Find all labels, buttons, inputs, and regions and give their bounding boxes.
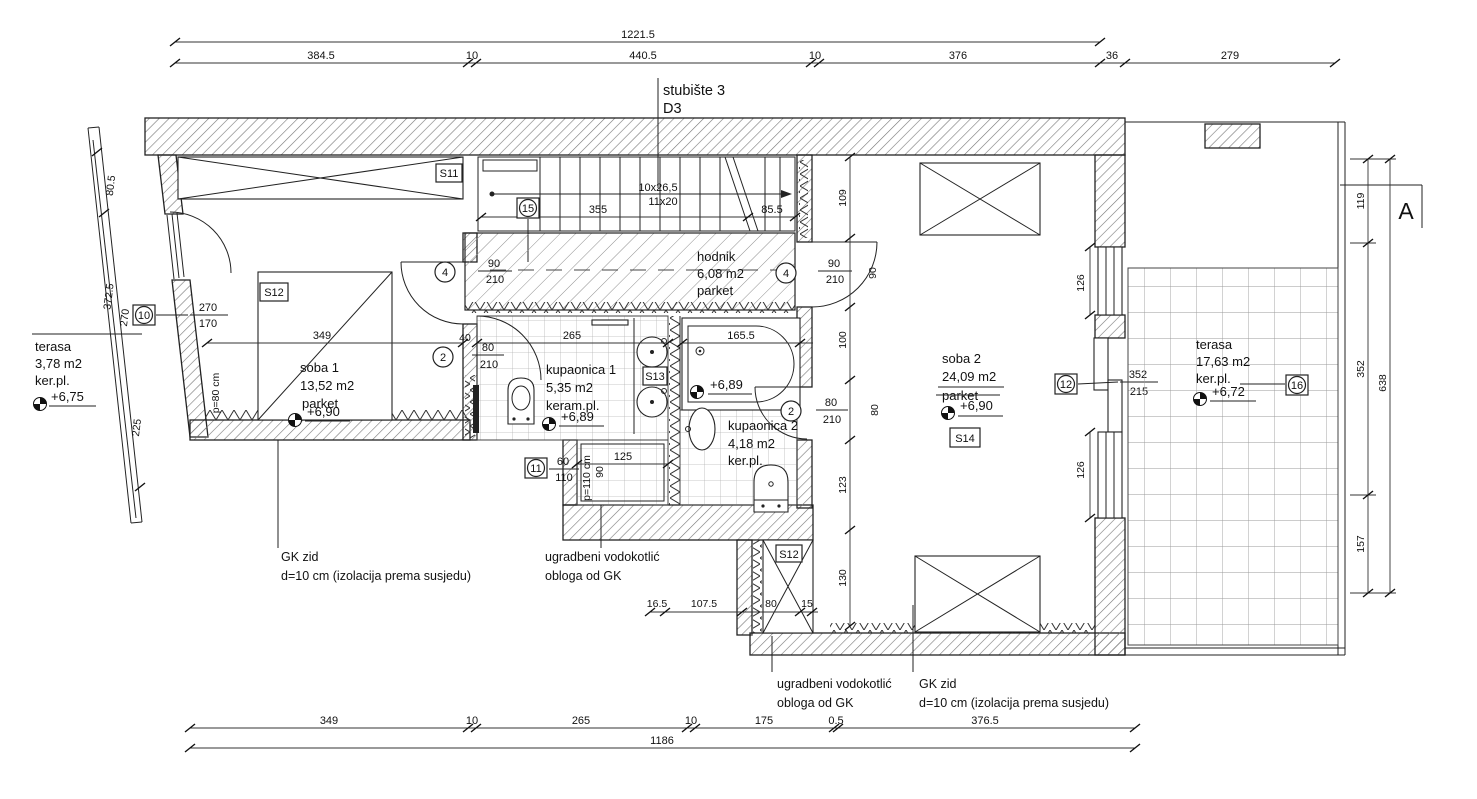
window-upper — [1098, 247, 1122, 315]
note-gk-right-2: d=10 cm (izolacija prema susjedu) — [919, 696, 1109, 710]
soba1-name: soba 1 — [300, 360, 339, 375]
dim-closet-16-5: 16.5 — [647, 598, 668, 610]
level-marker-icon — [34, 398, 47, 411]
stair-tread-count: 11x20 — [648, 196, 677, 208]
dim-right-352: 352 — [1355, 360, 1367, 378]
stair-door-label: D3 — [663, 101, 682, 117]
door2r-width: 80 — [825, 397, 837, 409]
win10-height: 170 — [199, 318, 217, 330]
top-dimension-lines: 1221.5 384.5 10 440.5 10 376 36 279 — [170, 29, 1340, 67]
dim-left-372-5: 372.5 — [101, 283, 116, 311]
terasa-left-level: +6,75 — [51, 389, 84, 404]
door-mark-2-right: 2 — [788, 406, 794, 418]
dim-126-lower: 126 — [1075, 461, 1087, 479]
dim-closet-107-5: 107.5 — [691, 598, 717, 610]
kup2-floor: ker.pl. — [728, 453, 763, 468]
window-swing-arc — [170, 212, 231, 273]
win11-parapet: p=110 cm — [581, 455, 593, 501]
soba2-east-wall-lower — [1095, 518, 1125, 655]
toilet-kup1 — [508, 378, 534, 424]
kup-divider-wall — [669, 316, 680, 505]
note-cistern-left-1: ugradbeni vodokotlić — [545, 550, 660, 564]
dim-top-4: 376 — [949, 50, 967, 62]
dim-mid-100: 100 — [837, 331, 849, 349]
note-gk-right-1: GK zid — [919, 677, 957, 691]
dim-mid-90: 90 — [867, 267, 879, 279]
soba2-east-wall-upper — [1095, 155, 1125, 247]
kup2-area: 4,18 m2 — [728, 436, 775, 451]
dim-40: 40 — [459, 332, 471, 344]
marker-12: 12 — [1060, 379, 1072, 391]
soba2-level: +6,90 — [960, 398, 993, 413]
dim-90-rotated: 90 — [594, 466, 606, 478]
door-mark-2-left: 2 — [440, 352, 446, 364]
dim-bottom-4: 175 — [755, 715, 773, 727]
dim-top-1: 10 — [466, 50, 478, 62]
soba2-east-wall-mid — [1095, 315, 1125, 338]
dim-shower-125: 125 — [614, 451, 632, 463]
radiator — [473, 385, 479, 433]
level-marker-icon — [691, 386, 704, 399]
terasa-right-name: terasa — [1196, 337, 1233, 352]
soba2-name: soba 2 — [942, 351, 981, 366]
dim-right-total-638: 638 — [1377, 374, 1389, 392]
dim-soba1-349: 349 — [313, 330, 331, 342]
note-cistern-right-2: obloga od GK — [777, 696, 854, 710]
terrace-tile-floor — [1128, 268, 1338, 645]
kup1-name: kupaonica 1 — [546, 362, 616, 377]
dim-top-3: 10 — [809, 50, 821, 62]
win10-width: 270 — [199, 302, 217, 314]
soba2-area: 24,09 m2 — [942, 369, 996, 384]
win11-width: 60 — [557, 456, 569, 468]
win11-height: 110 — [555, 472, 573, 484]
dim-stair-355: 355 — [589, 204, 607, 216]
dim-top-5: 36 — [1106, 50, 1118, 62]
terasa-left-floor: ker.pl. — [35, 373, 70, 388]
mark-s13: S13 — [645, 371, 665, 383]
mark-s14: S14 — [955, 433, 975, 445]
floor-plan-sheet: 80.5 372.5 270 225 1221.5 384.5 10 440.5… — [0, 0, 1477, 799]
level-marker-icon — [942, 407, 955, 420]
cistern-closet: S12 16.5 107.5 80 15 — [645, 540, 818, 633]
stair-title: stubište 3 — [663, 83, 725, 99]
soba1-level: +6,90 — [307, 404, 340, 419]
floor-plan-drawing: 80.5 372.5 270 225 1221.5 384.5 10 440.5… — [0, 0, 1477, 799]
insulation-hodnik-south — [465, 302, 795, 313]
shower-area: 125 11 60 110 p=110 cm 90 — [525, 440, 673, 505]
note-gk-left-2: d=10 cm (izolacija prema susjedu) — [281, 569, 471, 583]
kup2-name: kupaonica 2 — [728, 418, 798, 433]
dim-bottom-3: 10 — [685, 715, 697, 727]
right-dimension-chain: 119 352 157 638 — [1350, 155, 1396, 597]
dim-bottom-0: 349 — [320, 715, 338, 727]
terasa-right-level: +6,72 — [1212, 384, 1245, 399]
dim-mid-109: 109 — [837, 189, 849, 207]
door4l-width: 90 — [488, 258, 500, 270]
mark-s11: S11 — [440, 168, 459, 180]
dim-mid-123: 123 — [837, 476, 849, 494]
stair-direction-arrow-icon — [781, 190, 792, 198]
level-marker-icon — [543, 418, 556, 431]
dim-top-2: 440.5 — [629, 50, 657, 62]
kup2-level: +6,89 — [710, 377, 743, 392]
dim-tub-165-5: 165.5 — [727, 330, 755, 342]
center-vertical-wall — [737, 540, 752, 635]
dim-mid-130: 130 — [837, 569, 849, 587]
door2r-height: 210 — [823, 414, 841, 426]
dim-bottom-2: 265 — [572, 715, 590, 727]
section-marker-a: A — [1340, 185, 1422, 228]
insulation-soba2-wall — [799, 160, 808, 238]
kup1-level: +6,89 — [561, 409, 594, 424]
sliding-door-panel — [1108, 380, 1122, 432]
window-lower — [1098, 432, 1122, 518]
note-gk-left-1: GK zid — [281, 550, 319, 564]
dim-bottom-1: 10 — [466, 715, 478, 727]
toilet-kup2 — [754, 465, 788, 512]
kup1-area: 5,35 m2 — [546, 380, 593, 395]
dim-top-total: 1221.5 — [621, 29, 655, 41]
door-mark-4-left: 4 — [442, 267, 448, 279]
insulation-strip-closet — [753, 540, 762, 633]
marker-11: 11 — [530, 463, 541, 475]
soba2-bottom-wall — [750, 633, 1125, 655]
mark-s12-soba1: S12 — [264, 287, 284, 299]
soba1-bottom-wall — [190, 420, 470, 440]
terasa-left-name: terasa — [35, 339, 72, 354]
note-cistern-left-2: obloga od GK — [545, 569, 622, 583]
terasa-left-area: 3,78 m2 — [35, 356, 82, 371]
dim-126-upper: 126 — [1075, 274, 1087, 292]
dim-closet-15: 15 — [801, 598, 813, 610]
dim-bottom-total: 1186 — [650, 735, 674, 747]
door-mark-4-right: 4 — [783, 268, 789, 280]
dim-right-157: 157 — [1355, 535, 1367, 553]
top-wall — [145, 118, 1125, 155]
dim-left-80-5: 80.5 — [104, 175, 118, 197]
door2l-height: 210 — [480, 359, 498, 371]
soba1-area: 13,52 m2 — [300, 378, 354, 393]
dim-closet-80: 80 — [765, 598, 777, 610]
dim-mid-80: 80 — [869, 404, 881, 416]
dim-left-270: 270 — [118, 308, 132, 327]
hodnik-area: 6,08 m2 — [697, 266, 744, 281]
note-cistern-right-1: ugradbeni vodokotlić — [777, 677, 892, 691]
dim-top-0: 384.5 — [307, 50, 335, 62]
level-marker-icon — [289, 414, 302, 427]
hodnik-name: hodnik — [697, 249, 736, 264]
terasa-right-area: 17,63 m2 — [1196, 354, 1250, 369]
soba2-west-wall-lower — [797, 440, 812, 508]
level-marker-icon — [1194, 393, 1207, 406]
dim-bottom-6: 376.5 — [971, 715, 999, 727]
terrace-chimney — [1205, 124, 1260, 148]
section-label: A — [1398, 198, 1414, 224]
shelf-kup1 — [592, 320, 628, 325]
marker-10: 10 — [138, 310, 150, 322]
door2l-width: 80 — [482, 342, 494, 354]
hodnik-floor-label: parket — [697, 283, 734, 298]
dim-right-119: 119 — [1355, 192, 1367, 209]
hodnik-floor — [465, 233, 795, 310]
door4r-height: 210 — [826, 274, 844, 286]
dim-top-6: 279 — [1221, 50, 1239, 62]
win10-parapet: p=80 cm — [210, 372, 222, 413]
dim-left-225: 225 — [130, 418, 144, 437]
bottom-dimension-lines: 349 10 265 10 175 0.5 376.5 1186 — [185, 715, 1140, 752]
mark-s12-closet: S12 — [779, 549, 799, 561]
dim-stair-85-5: 85.5 — [761, 204, 782, 216]
dim-kup1-265: 265 — [563, 330, 581, 342]
door4r-width: 90 — [828, 258, 840, 270]
door4l-height: 210 — [486, 274, 504, 286]
room-kupaonica2: 165.5 +6,89 2 80 210 kupaonica 2 4,18 m2… — [677, 318, 848, 512]
marker-16: 16 — [1291, 380, 1303, 392]
mid-dimension-chain: 109 90 100 80 123 130 — [837, 153, 881, 630]
marker-15: 15 — [522, 203, 534, 215]
dim-bottom-5: 0.5 — [828, 715, 843, 727]
terrace-right: terasa 17,63 m2 ker.pl. +6,72 16 — [1125, 122, 1345, 655]
stair-landing-shelf — [483, 160, 537, 171]
